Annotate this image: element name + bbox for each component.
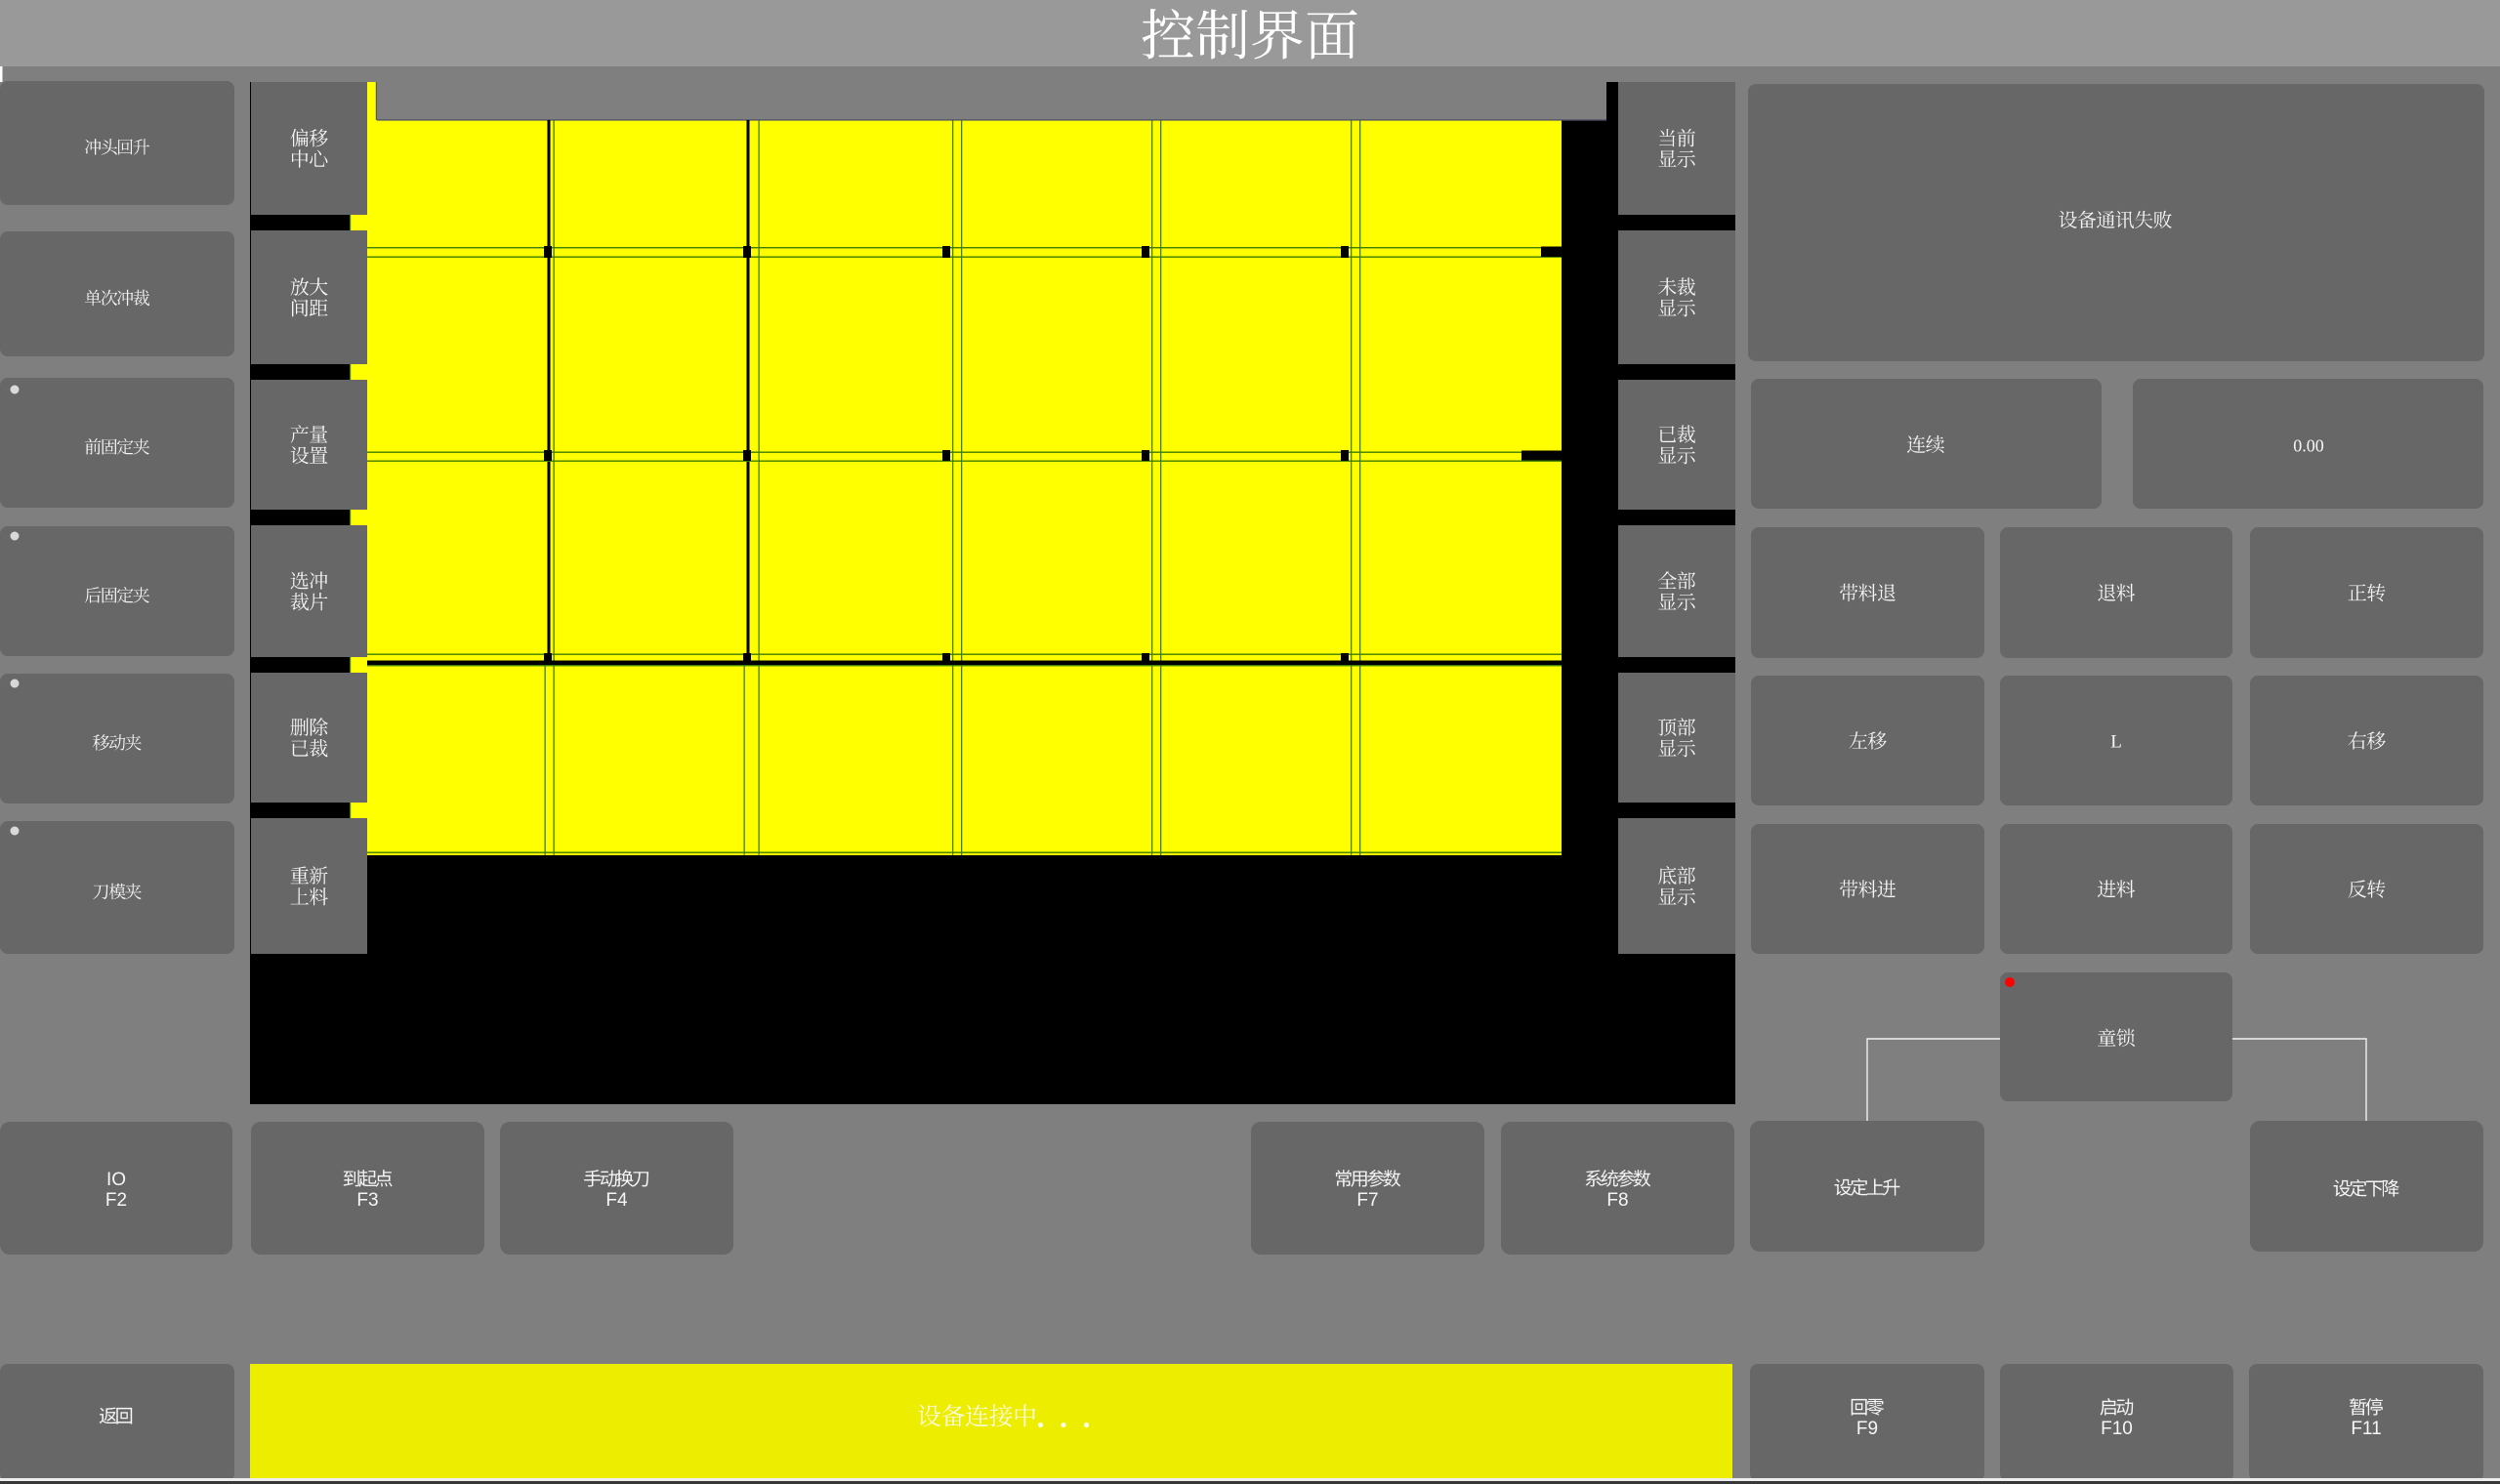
svg-text:0.00: 0.00 — [2293, 436, 2324, 456]
svg-text:F11: F11 — [2351, 1419, 2381, 1439]
svg-text:F3: F3 — [356, 1190, 378, 1211]
svg-text:F2: F2 — [105, 1190, 127, 1211]
svg-text:F7: F7 — [1356, 1190, 1378, 1211]
svg-text:F8: F8 — [1606, 1190, 1628, 1211]
svg-text:L: L — [2110, 731, 2122, 752]
svg-text:F4: F4 — [605, 1190, 628, 1211]
svg-text:F10: F10 — [2101, 1419, 2133, 1439]
svg-text:F9: F9 — [1856, 1419, 1878, 1439]
svg-text:IO: IO — [106, 1170, 126, 1190]
